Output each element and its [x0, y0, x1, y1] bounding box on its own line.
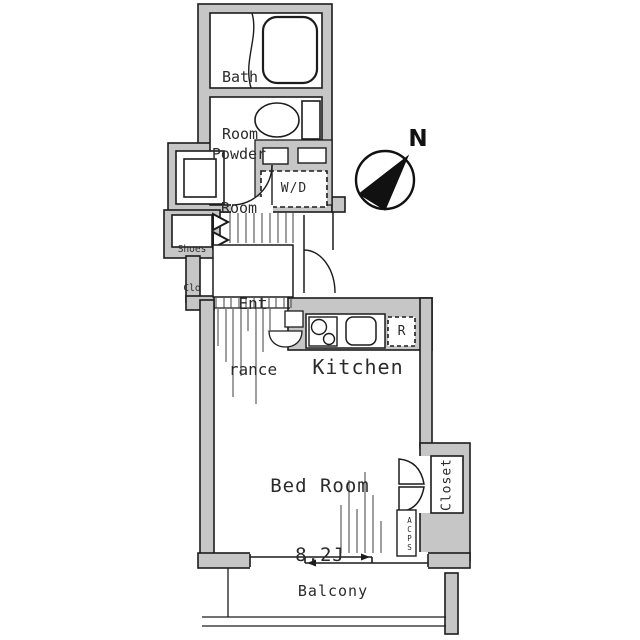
- shoes-closet-label-line1: Shoes: [171, 243, 213, 256]
- shoes-closet-label: Shoes Clo: [171, 217, 213, 321]
- refrigerator-label: R: [388, 317, 415, 346]
- bedroom-left-wall: [200, 300, 214, 560]
- acps-label: ACPS: [400, 513, 414, 555]
- balcony-partition: [445, 573, 458, 634]
- bath-room-label-line1: Bath: [212, 68, 268, 87]
- powder-room-label-line1: Powder: [204, 145, 274, 163]
- entrance-label-line2: rance: [213, 359, 293, 381]
- powder-room-label-line2: Room: [204, 199, 274, 217]
- closet-label: Closet: [440, 455, 455, 515]
- floor-plan: Bath Room Powder Room W/D Shoes Clo Ent …: [0, 0, 640, 640]
- toilet-tank: [302, 101, 320, 139]
- bedroom-size-label: 8.2J: [240, 544, 400, 567]
- compass: [356, 151, 414, 210]
- wall-extension: [332, 197, 345, 212]
- kitchen-sink: [346, 317, 376, 345]
- bedroom-right-wall: [420, 298, 432, 448]
- balcony-label: Balcony: [283, 582, 383, 600]
- vanity-counter: [298, 148, 326, 163]
- compass-north-label: N: [402, 126, 434, 152]
- bathtub: [263, 17, 317, 83]
- washer-dryer-label: W/D: [261, 181, 327, 196]
- bedroom-label-line1: Bed Room: [240, 475, 400, 498]
- stove-burner-large: [312, 320, 327, 335]
- entrance-label-line1: Ent: [213, 293, 293, 315]
- stove-burner-small: [324, 334, 335, 345]
- kitchen-label: Kitchen: [303, 355, 413, 379]
- hall-door-arc: [304, 250, 335, 293]
- entrance-label: Ent rance: [213, 249, 293, 425]
- shoes-closet-label-line2: Clo: [171, 282, 213, 295]
